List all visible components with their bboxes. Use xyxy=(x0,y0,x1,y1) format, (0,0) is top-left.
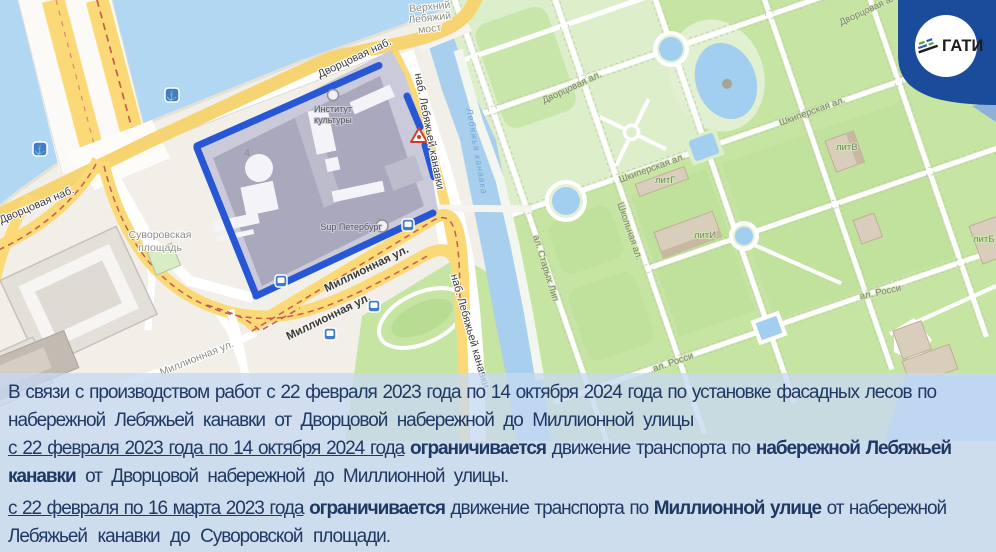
svg-text:4: 4 xyxy=(244,148,250,159)
svg-text:площадь: площадь xyxy=(138,242,182,254)
svg-text:ГАТИ: ГАТИ xyxy=(942,37,983,55)
svg-text:Суворовская: Суворовская xyxy=(129,229,192,241)
svg-text:Sup Петербург: Sup Петербург xyxy=(320,222,382,232)
svg-text:⚓: ⚓ xyxy=(34,144,45,155)
svg-text:литГ: литГ xyxy=(655,175,675,186)
svg-text:литВ: литВ xyxy=(836,142,858,153)
svg-text:⚓: ⚓ xyxy=(166,90,177,101)
svg-text:культуры: культуры xyxy=(314,115,352,125)
svg-text:литИ: литИ xyxy=(694,230,716,241)
svg-text:мост: мост xyxy=(418,22,442,36)
svg-text:Институт: Институт xyxy=(314,104,352,114)
svg-text:литБ: литБ xyxy=(973,234,994,245)
